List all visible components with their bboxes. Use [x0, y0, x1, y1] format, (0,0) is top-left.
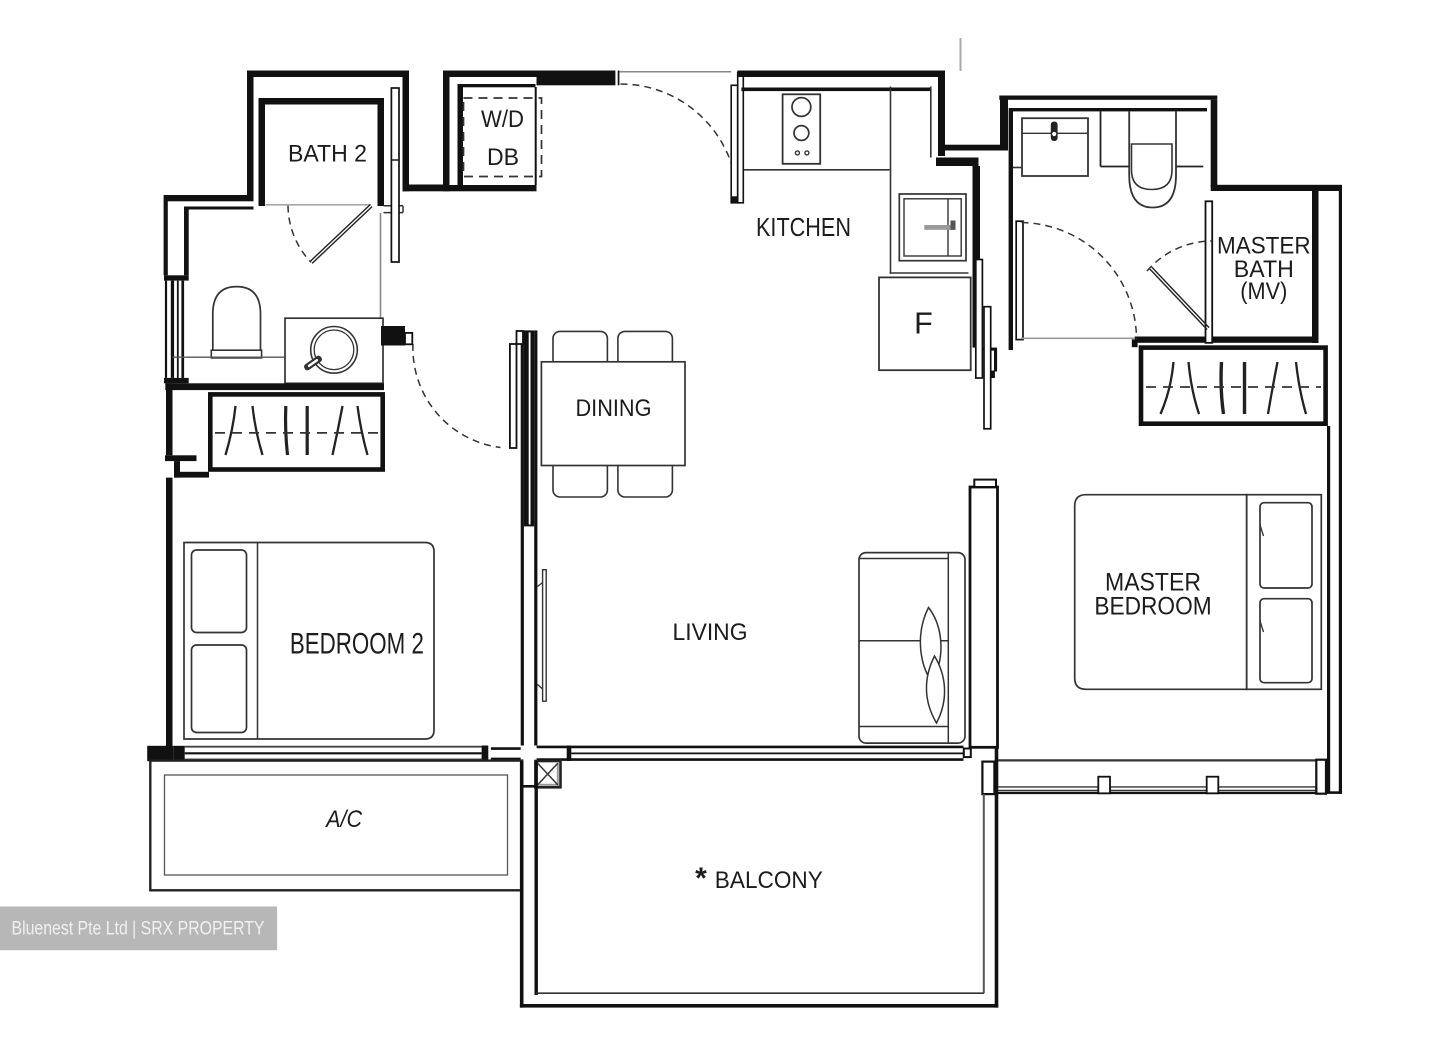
- svg-text:LIVING: LIVING: [673, 619, 748, 646]
- svg-text:Bluenest Pte Ltd | SRX PROPERT: Bluenest Pte Ltd | SRX PROPERTY: [12, 918, 265, 940]
- svg-text:BEDROOM 2: BEDROOM 2: [290, 627, 424, 660]
- svg-text:BALCONY: BALCONY: [715, 867, 823, 894]
- svg-text:(MV): (MV): [1240, 278, 1287, 305]
- svg-text:BEDROOM: BEDROOM: [1094, 593, 1211, 621]
- svg-text:DINING: DINING: [576, 395, 652, 422]
- svg-text:DB: DB: [487, 144, 519, 171]
- svg-text:BATH 2: BATH 2: [288, 141, 367, 168]
- svg-text:KITCHEN: KITCHEN: [756, 214, 851, 242]
- svg-text:A/C: A/C: [324, 806, 362, 833]
- svg-text:*: *: [695, 862, 707, 895]
- svg-text:F: F: [914, 307, 933, 341]
- svg-text:W/D: W/D: [481, 106, 524, 133]
